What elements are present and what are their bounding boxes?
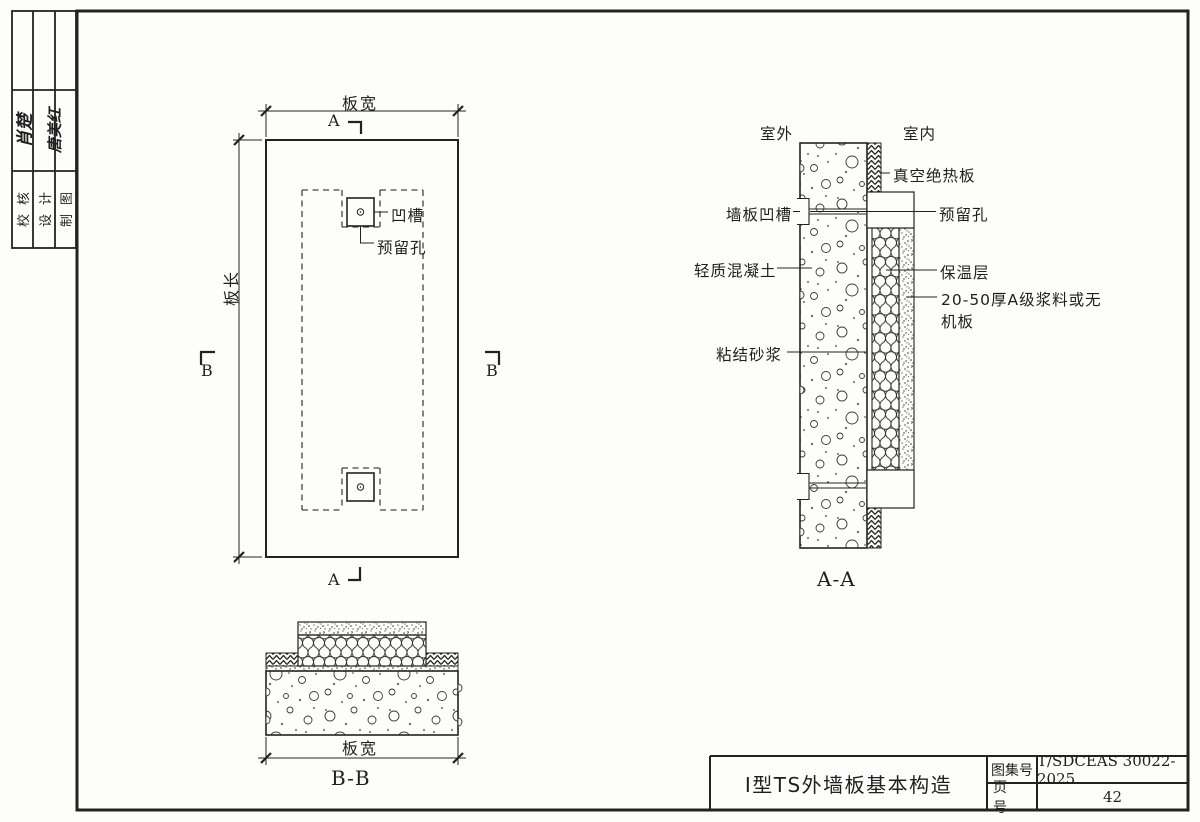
signature-design: 唐美红 xyxy=(33,90,75,171)
plan-view xyxy=(201,104,499,580)
page-no-label: 页 号 xyxy=(987,783,1037,810)
aa-insulation-label: 保温层 xyxy=(940,261,990,283)
dim-plan-length xyxy=(233,133,262,564)
drawing-linework xyxy=(0,0,1200,822)
stamp-label-draft: 制图 xyxy=(55,171,76,248)
aa-vacuum-panel-label: 真空绝热板 xyxy=(893,164,976,186)
panel-groove-bottom xyxy=(797,474,810,500)
drawing-title: I型TS外墙板基本构造 xyxy=(710,756,987,810)
section-b-letter-right: B xyxy=(486,361,498,380)
aa-mortar-board-label-line1: 20-50厚A级浆料或无 xyxy=(941,288,1102,310)
sheet-frame xyxy=(12,11,1188,810)
plan-dim-width-label: 板宽 xyxy=(342,90,378,114)
atlas-no-value: T/SDCEAS 30022-2025 xyxy=(1037,756,1188,783)
section-aa-drawing xyxy=(777,143,937,548)
stamp-label-check: 校核 xyxy=(12,171,33,248)
signature-check: 肖楚 xyxy=(12,90,33,171)
stamp-label-design: 设计 xyxy=(33,171,55,248)
groove-square-top xyxy=(347,198,374,226)
page-no-value: 42 xyxy=(1037,783,1188,810)
aa-concrete-label: 轻质混凝土 xyxy=(694,259,777,281)
aa-section-title: A-A xyxy=(817,567,856,591)
aa-outside-label: 室外 xyxy=(760,122,793,144)
aa-panel-groove-label: 墙板凹槽 xyxy=(726,203,792,225)
bb-section-title: B-B xyxy=(331,766,371,790)
aa-mortar-board-label-line2: 机板 xyxy=(941,310,974,332)
bb-dim-width-label: 板宽 xyxy=(342,735,378,759)
aa-bond-mortar-label: 粘结砂浆 xyxy=(716,343,782,365)
section-a-letter-top: A xyxy=(328,111,340,130)
aa-reserved-hole-label: 预留孔 xyxy=(939,203,989,225)
section-a-letter-bottom: A xyxy=(328,570,340,589)
plan-dim-length-label: 板长 xyxy=(212,268,248,308)
aa-inside-label: 室内 xyxy=(903,122,936,144)
groove-square-bottom xyxy=(347,473,374,501)
section-b-letter-left: B xyxy=(201,361,213,380)
drawing-sheet: 校核 设计 制图 肖楚 唐美红 板宽 A A B B 板长 凹槽 预留孔 室外 … xyxy=(0,0,1200,822)
plan-hole-label: 预留孔 xyxy=(377,236,427,258)
plan-groove-label: 凹槽 xyxy=(391,204,424,226)
